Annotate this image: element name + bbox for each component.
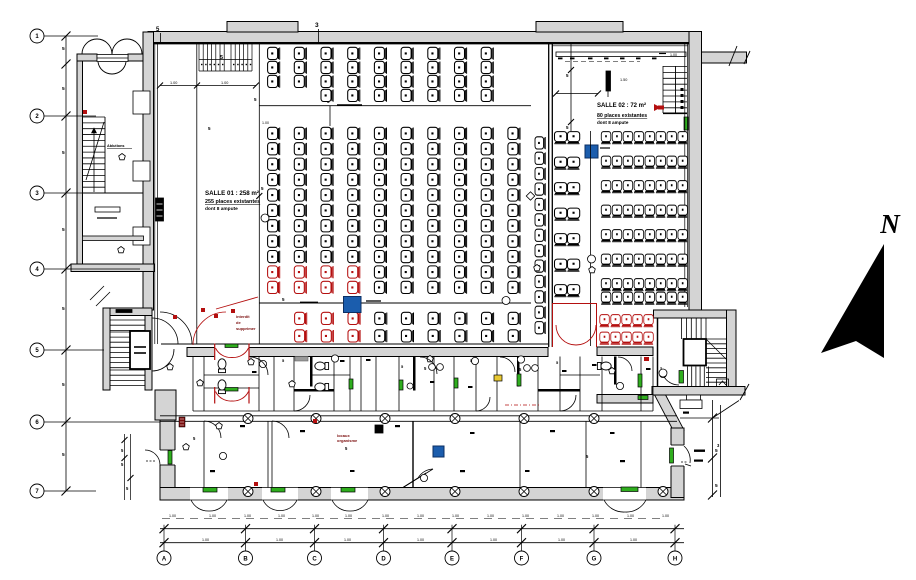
svg-text:1.00: 1.00 [221,81,228,85]
svg-text:E: E [450,556,454,562]
svg-text:H: H [673,556,677,562]
svg-text:1.00: 1.00 [244,514,251,518]
svg-text:5: 5 [62,382,65,388]
svg-text:SALLE 01 : 258 m²: SALLE 01 : 258 m² [205,190,259,197]
svg-text:1.00: 1.00 [452,514,459,518]
svg-text:1.00: 1.00 [557,514,564,518]
svg-text:A: A [162,556,167,562]
svg-text:N: N [879,209,901,239]
svg-text:G: G [592,556,597,562]
svg-text:1.00: 1.00 [170,81,177,85]
svg-text:5: 5 [62,150,65,156]
svg-text:1.00: 1.00 [276,538,283,542]
svg-text:SALLE 02 : 72 m²: SALLE 02 : 72 m² [597,102,646,109]
svg-text:255 places existantes: 255 places existantes [205,199,260,205]
svg-text:1.00: 1.00 [312,514,319,518]
svg-text:1.00: 1.00 [417,538,424,542]
svg-text:1.00: 1.00 [487,514,494,518]
svg-text:1.00: 1.00 [278,514,285,518]
svg-text:3: 3 [315,22,319,29]
svg-text:B: B [243,556,248,562]
svg-text:1.00: 1.00 [630,538,637,542]
svg-text:F: F [520,556,524,562]
svg-text:1.00: 1.00 [417,514,424,518]
svg-text:1.00: 1.00 [558,538,565,542]
svg-text:5: 5 [220,55,223,61]
svg-text:D: D [381,556,386,562]
svg-text:5: 5 [62,452,65,458]
svg-text:1.00: 1.00 [490,538,497,542]
svg-text:1.00: 1.00 [202,538,209,542]
svg-text:5: 5 [62,227,65,233]
svg-text:1.00: 1.00 [522,514,529,518]
svg-text:5: 5 [62,306,65,312]
svg-text:5: 5 [715,448,718,454]
svg-text:5: 5 [62,86,65,92]
svg-text:1.00: 1.00 [670,53,677,57]
svg-text:interdit: interdit [236,314,250,319]
svg-text:1.00: 1.00 [344,538,351,542]
svg-text:dont 8 ampute: dont 8 ampute [205,206,238,212]
svg-text:5: 5 [715,483,718,489]
svg-text:1.00: 1.00 [209,514,216,518]
svg-text:organisme: organisme [337,438,358,443]
svg-text:dont 8 ampute: dont 8 ampute [597,120,629,125]
svg-text:1.50: 1.50 [620,78,627,82]
svg-text:1.00: 1.00 [382,514,389,518]
svg-text:Ablutions: Ablutions [107,144,125,148]
svg-text:supprimer: supprimer [236,326,256,331]
svg-text:1.00: 1.00 [592,514,599,518]
svg-text:C: C [312,556,317,562]
svg-text:1.00: 1.00 [627,514,634,518]
svg-text:1.00: 1.00 [345,514,352,518]
svg-text:5: 5 [62,46,65,52]
svg-text:1.00: 1.00 [262,121,269,125]
svg-text:1.00: 1.00 [662,514,669,518]
svg-text:1.00: 1.00 [169,514,176,518]
svg-text:de: de [236,320,241,325]
svg-text:80 places existantes: 80 places existantes [597,113,647,119]
